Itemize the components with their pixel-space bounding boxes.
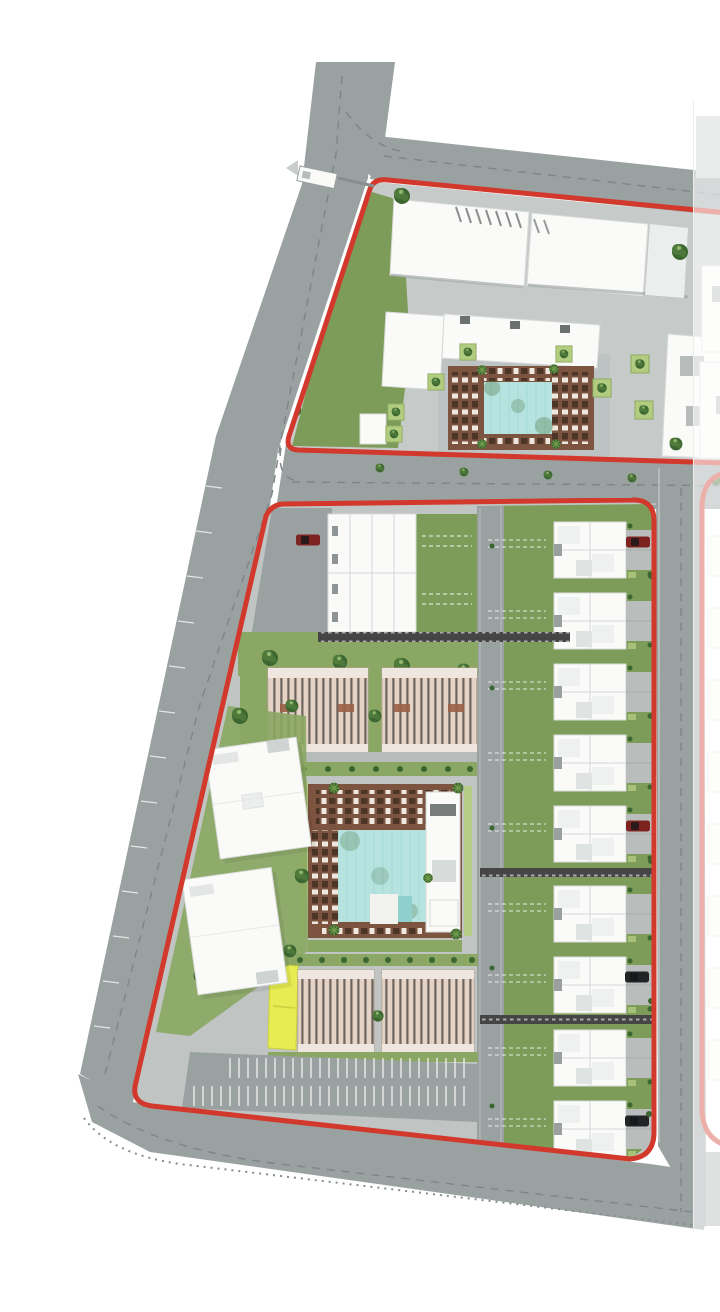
white-overlay (693, 100, 720, 1232)
amenity-courtyard (300, 782, 472, 952)
tree (295, 869, 309, 883)
planter (631, 355, 649, 373)
kiosk-building (360, 414, 386, 444)
retail-building-a (390, 199, 529, 288)
palm-icon (477, 439, 487, 449)
planter (428, 374, 444, 390)
parking-stalls (222, 1056, 472, 1078)
tree (333, 655, 347, 669)
pergola-walkway (480, 868, 656, 877)
planter (635, 401, 653, 419)
lap-pool (398, 896, 412, 922)
office-building-b (182, 867, 292, 1000)
apartment-block (382, 668, 477, 752)
parked-car (626, 821, 650, 832)
clubhouse (426, 792, 460, 932)
palm-icon (551, 439, 561, 449)
townhouse-field (477, 504, 656, 1158)
tree (262, 650, 278, 666)
tree (670, 438, 683, 451)
median-tree (460, 468, 469, 477)
palm-icon (549, 364, 559, 374)
site-plan-svg (40, 16, 720, 1296)
tree (672, 244, 688, 260)
site-plan (40, 16, 720, 1296)
planter (593, 379, 611, 397)
parked-car (625, 1116, 649, 1127)
palm-icon (477, 365, 487, 375)
retail-building-c (645, 224, 688, 298)
parked-car (296, 535, 320, 546)
tree (394, 188, 410, 204)
pool-pad (370, 894, 398, 924)
tree (232, 708, 248, 724)
tree (372, 1010, 383, 1021)
upper-courtyard-pool (448, 364, 594, 450)
palm-icon (329, 925, 340, 936)
palm-icon (453, 783, 464, 794)
parked-car (625, 972, 649, 983)
office-building-a (205, 737, 316, 864)
apartment-block (382, 970, 474, 1052)
parking-stalls (190, 1086, 472, 1108)
median-tree (376, 464, 385, 473)
tree (286, 700, 299, 713)
palm-icon (451, 929, 462, 940)
parked-car (626, 537, 650, 548)
apartment-block (298, 970, 374, 1052)
planter (388, 404, 404, 420)
median-tree (544, 471, 553, 480)
planter (460, 344, 476, 360)
median-tree (628, 474, 637, 483)
palm-icon (423, 873, 433, 883)
planter (386, 426, 402, 442)
apartment-row-south (268, 954, 478, 1062)
palm-icon (329, 783, 340, 794)
planter (556, 346, 572, 362)
tree (369, 710, 382, 723)
pergola-walkway (480, 1015, 656, 1024)
